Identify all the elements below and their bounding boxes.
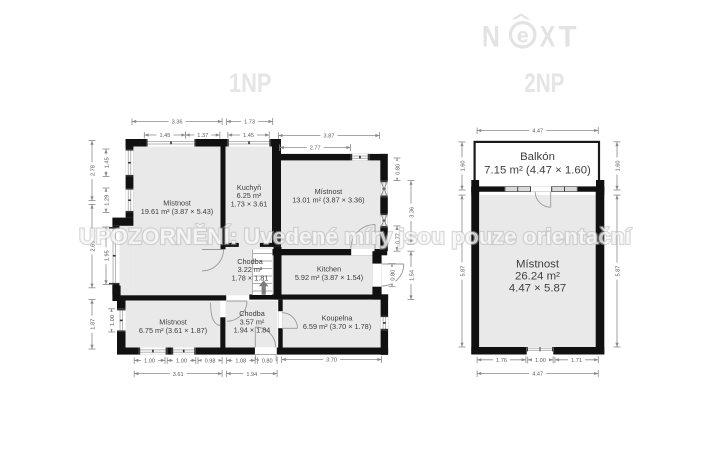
svg-text:1.29: 1.29 (104, 195, 110, 206)
svg-text:1.60: 1.60 (615, 161, 621, 172)
svg-text:X: X (540, 21, 556, 54)
svg-text:1.73: 1.73 (244, 120, 255, 126)
svg-text:0.80: 0.80 (262, 359, 273, 365)
svg-text:19.61 m² (3.87 × 5.43): 19.61 m² (3.87 × 5.43) (141, 207, 213, 216)
svg-text:1.73 × 3.61: 1.73 × 3.61 (231, 199, 268, 208)
svg-text:Místnost: Místnost (516, 259, 560, 271)
svg-text:UPOZORNĚNÍ: Uvedené míry jsou: UPOZORNĚNÍ: Uvedené míry jsou pouze orie… (79, 224, 632, 249)
svg-text:1.95: 1.95 (104, 250, 110, 261)
svg-text:2.77: 2.77 (310, 146, 321, 152)
svg-text:3.36: 3.36 (409, 207, 415, 218)
svg-text:T: T (559, 21, 577, 54)
svg-text:7.15 m² (4.47 × 1.60): 7.15 m² (4.47 × 1.60) (484, 165, 591, 177)
svg-text:3.61: 3.61 (173, 372, 184, 378)
svg-text:1.00: 1.00 (110, 315, 116, 326)
svg-text:N: N (482, 21, 500, 54)
svg-text:Kitchen: Kitchen (317, 264, 341, 273)
svg-text:1.76: 1.76 (496, 358, 507, 364)
svg-text:6.59 m² (3.70 × 1.78): 6.59 m² (3.70 × 1.78) (303, 322, 371, 331)
svg-text:1.00: 1.00 (176, 359, 187, 365)
svg-text:1.45: 1.45 (160, 133, 171, 139)
svg-text:5.87: 5.87 (460, 266, 466, 277)
svg-text:1.78 × 1.81: 1.78 × 1.81 (232, 273, 269, 282)
svg-text:0.80: 0.80 (390, 270, 396, 281)
svg-text:3.87: 3.87 (324, 134, 335, 140)
svg-text:Balkón: Balkón (520, 151, 555, 163)
svg-text:4.47 × 5.87: 4.47 × 5.87 (509, 282, 566, 294)
svg-text:1.08: 1.08 (235, 359, 246, 365)
svg-text:6.75 m² (3.61 × 1.87): 6.75 m² (3.61 × 1.87) (139, 326, 207, 335)
svg-text:e: e (517, 25, 529, 48)
svg-text:2.78: 2.78 (90, 165, 96, 176)
svg-text:0.98: 0.98 (205, 359, 216, 365)
svg-text:3.36: 3.36 (172, 120, 183, 126)
svg-text:1.71: 1.71 (571, 358, 582, 364)
svg-text:1.45: 1.45 (104, 157, 110, 168)
svg-text:0.80: 0.80 (395, 164, 401, 175)
svg-text:1NP: 1NP (229, 68, 272, 98)
svg-text:1.00: 1.00 (144, 359, 155, 365)
svg-text:3.70: 3.70 (326, 358, 337, 364)
svg-text:1.54: 1.54 (409, 270, 415, 281)
svg-text:5.87: 5.87 (615, 266, 621, 277)
svg-text:1.87: 1.87 (90, 319, 96, 330)
svg-text:4.47: 4.47 (532, 129, 543, 135)
svg-text:5.92 m² (3.87 × 1.54): 5.92 m² (3.87 × 1.54) (295, 273, 363, 282)
svg-text:1.60: 1.60 (460, 161, 466, 172)
svg-text:2NP: 2NP (524, 68, 564, 98)
svg-text:1.45: 1.45 (243, 133, 254, 139)
svg-text:1.94: 1.94 (246, 372, 257, 378)
svg-text:4.47: 4.47 (532, 372, 543, 378)
svg-text:26.24 m²: 26.24 m² (515, 271, 560, 283)
svg-text:13.01 m² (3.87 × 3.36): 13.01 m² (3.87 × 3.36) (292, 196, 364, 205)
svg-text:1.00: 1.00 (535, 358, 546, 364)
svg-text:1.37: 1.37 (197, 133, 208, 139)
svg-text:1.94 × 1.84: 1.94 × 1.84 (234, 326, 271, 335)
